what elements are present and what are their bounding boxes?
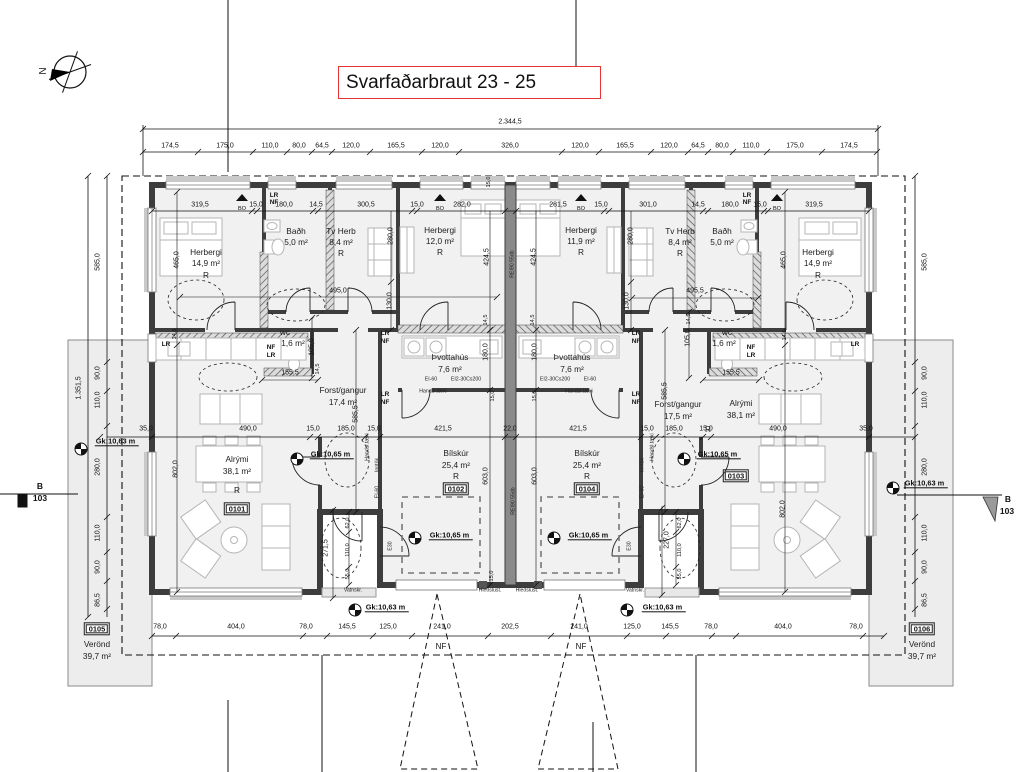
dimension-label: 22,0 bbox=[503, 426, 517, 433]
dimension-label: 585,0 bbox=[922, 253, 929, 271]
dimension-label: 175,0 bbox=[216, 143, 234, 150]
room-label: Verönd bbox=[909, 640, 935, 648]
dimension-label: 78,0 bbox=[704, 624, 718, 631]
dimension-label: 110,0 bbox=[743, 143, 760, 150]
dimension-label: 15,0 bbox=[594, 202, 608, 209]
dimension-label: 14,5 bbox=[173, 329, 179, 340]
dimension-label: 185,0 bbox=[337, 426, 355, 433]
dimension-label: 15,0 bbox=[367, 426, 381, 433]
north-label: N bbox=[39, 67, 49, 74]
dimension-label: 603,0 bbox=[483, 467, 490, 485]
window-tag: NF bbox=[632, 339, 641, 345]
dimension-label: 105,0 bbox=[309, 338, 316, 356]
room-label: 39,7 m² bbox=[908, 652, 936, 660]
driveway-marking bbox=[400, 594, 618, 769]
room-label: 25,4 m² bbox=[573, 461, 601, 469]
dimension-label: 80,0 bbox=[715, 143, 729, 150]
dimension-label: 280,0 bbox=[628, 227, 635, 245]
drawing-title: Svarfaðarbraut 23 - 25 bbox=[338, 66, 601, 99]
room-number-badge: 0102 bbox=[445, 484, 467, 493]
dimension-label: 495,5 bbox=[686, 288, 704, 295]
room-label: Herbergi bbox=[565, 226, 597, 234]
window-tag: NF bbox=[632, 400, 641, 406]
dimension-label: 110,0 bbox=[678, 543, 684, 557]
window-tag: NF bbox=[743, 200, 752, 206]
dimension-label: 15,0 bbox=[487, 177, 493, 188]
dimension-label: 421,5 bbox=[569, 426, 587, 433]
tech-label: Vatnskr. bbox=[344, 588, 362, 593]
dimension-label: 14,5 bbox=[783, 330, 789, 341]
room-label: 1,6 m² bbox=[712, 339, 736, 347]
dimension-label: 404,0 bbox=[227, 624, 245, 631]
dimension-label: 55,0 bbox=[346, 569, 352, 580]
level-label: Gk:10,63 m bbox=[365, 603, 409, 612]
room-label: Forst/gangur bbox=[654, 400, 701, 408]
dimension-label: 125,0 bbox=[379, 624, 397, 631]
level-label: Gk:10,65 m bbox=[697, 450, 741, 459]
room-label: Þvottahús bbox=[432, 353, 469, 361]
section-label: 103 bbox=[1000, 507, 1014, 516]
window-tag: LR bbox=[851, 342, 860, 348]
dimension-label: 404,0 bbox=[774, 624, 792, 631]
dimension-label: 15,0 bbox=[533, 391, 539, 402]
dimension-label: 145,5 bbox=[338, 624, 356, 631]
dimension-label: 64,5 bbox=[315, 143, 329, 150]
tech-label: REI90 55db bbox=[510, 250, 515, 277]
dimension-label: 15,0 bbox=[410, 202, 424, 209]
dimension-label: 465,0 bbox=[174, 251, 181, 269]
tech-label: Handsl.tæki bbox=[419, 389, 446, 394]
room-label: R bbox=[677, 249, 683, 257]
dimension-label: 15,0 bbox=[490, 571, 496, 582]
dimension-label: 465,0 bbox=[781, 251, 788, 269]
room-label: 7,6 m² bbox=[560, 365, 584, 373]
room-label: Alrými bbox=[225, 455, 248, 463]
dimension-label: 802,0 bbox=[173, 460, 180, 478]
tech-label: REI90 55db bbox=[511, 487, 516, 514]
dimension-label: 2.344,5 bbox=[498, 119, 521, 126]
dimension-label: 490,0 bbox=[239, 426, 257, 433]
room-label: 7,6 m² bbox=[438, 365, 462, 373]
dimension-label: 280,0 bbox=[95, 458, 102, 476]
dimension-label: 326,0 bbox=[501, 143, 519, 150]
window-tag: LR bbox=[632, 331, 641, 337]
dimension-label: 802,0 bbox=[780, 500, 787, 518]
section-label: 103 bbox=[33, 494, 47, 503]
room-label: R bbox=[234, 486, 240, 494]
dimension-label: 120,0 bbox=[431, 143, 449, 150]
dimension-label: 145,5 bbox=[661, 624, 679, 631]
north-arrow-icon bbox=[49, 51, 91, 92]
room-label: R bbox=[338, 249, 344, 257]
dimension-label: 603,0 bbox=[532, 467, 539, 485]
tech-label: EI2-30Cs200 bbox=[540, 377, 570, 382]
dimension-label: 15,0 bbox=[753, 202, 767, 209]
level-label: Gk:10,63 m bbox=[95, 437, 139, 446]
room-label: 11,9 m² bbox=[567, 237, 595, 245]
dimension-label: 585,0 bbox=[95, 253, 102, 271]
floor-plan-sheet: Svarfaðarbraut 23 - 25 2.344,5174,5175,0… bbox=[0, 0, 1025, 772]
tech-label: Handsl.tæki bbox=[565, 389, 592, 394]
window-tag: LR bbox=[381, 331, 390, 337]
dimension-label: 241,0 bbox=[570, 624, 588, 631]
dimension-label: 424,5 bbox=[484, 248, 491, 266]
dimension-label: 80,0 bbox=[292, 143, 306, 150]
dimension-label: 105,0 bbox=[685, 329, 692, 347]
dimension-label: 14,5 bbox=[316, 364, 322, 375]
window-tag: LR bbox=[162, 342, 171, 348]
dimension-label: 120,0 bbox=[342, 143, 360, 150]
room-label: R bbox=[453, 472, 459, 480]
room-label: 5,0 m² bbox=[284, 238, 308, 246]
window-tag: NF bbox=[381, 400, 390, 406]
tech-label: EI-60 bbox=[375, 486, 380, 498]
dimension-label: 282,0 bbox=[453, 202, 471, 209]
dimension-label: 15,0 bbox=[491, 391, 497, 402]
room-label: R bbox=[578, 248, 584, 256]
tech-label: Hleðslust. bbox=[516, 588, 539, 593]
dimension-label: 15,0 bbox=[640, 426, 654, 433]
dimension-label: 90,0 bbox=[922, 366, 929, 380]
nf-label: NF bbox=[576, 643, 587, 651]
window-tag: NF bbox=[747, 345, 756, 351]
dimension-label: 585,5 bbox=[353, 405, 360, 423]
dimension-label: 165,5 bbox=[616, 143, 634, 150]
room-label: R bbox=[584, 472, 590, 480]
dimension-label: 14,5 bbox=[687, 314, 693, 325]
room-label: wc bbox=[722, 328, 732, 336]
dimension-label: 155,5 bbox=[722, 370, 740, 377]
dimension-label: 90,0 bbox=[95, 366, 102, 380]
dimension-label: 35,0 bbox=[139, 426, 153, 433]
dimension-label: 280,0 bbox=[388, 227, 395, 245]
dimension-label: 495,0 bbox=[329, 288, 347, 295]
dimension-label: 110,0 bbox=[262, 143, 279, 150]
dimension-label: 62,0 bbox=[346, 518, 352, 529]
level-label: Gk:10,65 m bbox=[310, 450, 354, 459]
dimension-label: 110,0 bbox=[922, 392, 929, 409]
dimension-label: 78,0 bbox=[153, 624, 167, 631]
room-label: 1,6 m² bbox=[281, 339, 305, 347]
window-tag: LR bbox=[747, 353, 756, 359]
dimension-label: 15,0 bbox=[249, 202, 263, 209]
dimension-label: 86,5 bbox=[922, 593, 929, 607]
dimension-label: 174,5 bbox=[840, 143, 858, 150]
room-label: Herbergi bbox=[190, 248, 222, 256]
room-label: 38,1 m² bbox=[223, 467, 251, 475]
dimension-label: 15,0 bbox=[306, 426, 320, 433]
dimension-label: 185,0 bbox=[665, 426, 683, 433]
room-number-badge: 0105 bbox=[86, 624, 108, 633]
room-label: Bílskúr bbox=[574, 449, 599, 457]
dimension-label: 227,0 bbox=[664, 531, 671, 549]
room-number-badge: 0101 bbox=[226, 504, 248, 513]
room-number-badge: 0104 bbox=[576, 484, 598, 493]
room-label: Tv Herb bbox=[326, 227, 356, 235]
window-tag: NF bbox=[381, 339, 390, 345]
room-label: 5,0 m² bbox=[710, 238, 734, 246]
room-label: Baðh bbox=[712, 227, 731, 235]
tech-label: EI-60 bbox=[640, 486, 645, 498]
window-tag: LR bbox=[267, 353, 276, 359]
room-label: Baðh bbox=[286, 227, 305, 235]
dimension-label: 110,0 bbox=[95, 392, 102, 409]
dimension-label: 78,0 bbox=[849, 624, 863, 631]
dimension-label: 271,5 bbox=[323, 539, 330, 557]
dimension-label: 180,0 bbox=[721, 202, 739, 209]
dimension-label: 165,5 bbox=[387, 143, 405, 150]
window-tag: LR bbox=[381, 392, 390, 398]
dimension-label: BO bbox=[436, 207, 444, 213]
room-label: Forst/gangur bbox=[319, 386, 366, 394]
dimension-label: 120,0 bbox=[571, 143, 589, 150]
dimension-label: 78,0 bbox=[299, 624, 313, 631]
room-label: 17,5 m² bbox=[664, 412, 692, 420]
dimension-label: 14,5 bbox=[484, 315, 490, 326]
dimension-label: 241,0 bbox=[433, 624, 451, 631]
tech-label: EI-60 bbox=[425, 377, 437, 382]
dimension-label: 110,0 bbox=[346, 543, 352, 557]
dimension-label: 490,0 bbox=[769, 426, 787, 433]
room-label: 39,7 m² bbox=[83, 652, 111, 660]
dimension-label: 174,5 bbox=[161, 143, 179, 150]
terrace-right bbox=[869, 340, 953, 686]
tech-label: EI2-30Cs200 bbox=[451, 377, 481, 382]
level-label: Gk:10,63 m bbox=[642, 603, 686, 612]
room-label: 38,1 m² bbox=[727, 411, 755, 419]
room-label: 8,4 m² bbox=[668, 238, 692, 246]
room-label: Verönd bbox=[84, 640, 110, 648]
party-wall bbox=[505, 185, 516, 585]
tech-label: Hleðslust. bbox=[479, 588, 502, 593]
dimension-label: 421,5 bbox=[434, 426, 452, 433]
room-label: 14,9 m² bbox=[804, 259, 832, 267]
dimension-label: 110,0 bbox=[922, 525, 929, 542]
dimension-label: 35,0 bbox=[859, 426, 873, 433]
dimension-label: BO bbox=[577, 207, 585, 213]
dimension-label: 14,5 bbox=[691, 202, 705, 209]
room-label: R bbox=[815, 271, 821, 279]
section-marker-left bbox=[18, 494, 27, 507]
dimension-label: 585,5 bbox=[662, 382, 669, 400]
dimension-label: 175,0 bbox=[786, 143, 804, 150]
dimension-label: 180,0 bbox=[532, 343, 539, 361]
dimension-label: 319,5 bbox=[805, 202, 823, 209]
window-tag: NF bbox=[270, 200, 279, 206]
room-label: Herbergi bbox=[424, 226, 456, 234]
window-tag: NF bbox=[267, 345, 276, 351]
dimension-label: 62,0 bbox=[678, 518, 684, 529]
room-number-badge: 0106 bbox=[911, 624, 933, 633]
room-label: Þvottahús bbox=[554, 353, 591, 361]
dimension-label: 281,5 bbox=[549, 202, 567, 209]
room-number-badge: 0103 bbox=[725, 471, 747, 480]
dimension-label: 130,0 bbox=[387, 292, 394, 310]
room-label: Bílskúr bbox=[443, 449, 468, 457]
dimension-label: 280,0 bbox=[922, 458, 929, 476]
level-label: Gk:10,63 m bbox=[904, 479, 948, 488]
tech-label: Handsl.tæki bbox=[650, 433, 655, 460]
dimension-label: 300,5 bbox=[357, 202, 375, 209]
room-label: 14,9 m² bbox=[192, 259, 220, 267]
nf-label: NF bbox=[436, 643, 447, 651]
room-label: R bbox=[437, 248, 443, 256]
dimension-label: 110,0 bbox=[95, 525, 102, 542]
dimension-label: 55,0 bbox=[678, 569, 684, 580]
tech-label: Inntök bbox=[640, 458, 645, 472]
dimension-label: 202,5 bbox=[501, 624, 519, 631]
room-label: Alrými bbox=[729, 399, 752, 407]
dimension-label: BO bbox=[238, 207, 246, 213]
dimension-label: 319,5 bbox=[191, 202, 209, 209]
room-label: R bbox=[705, 425, 711, 433]
tech-label: EI-60 bbox=[584, 377, 596, 382]
room-label: 8,4 m² bbox=[329, 238, 353, 246]
dimension-label: 64,5 bbox=[691, 143, 705, 150]
room-label: 12,0 m² bbox=[426, 237, 454, 245]
dimension-label: 424,5 bbox=[531, 248, 538, 266]
dimension-label: 86,5 bbox=[95, 593, 102, 607]
dimension-label: 1.351,5 bbox=[76, 376, 83, 399]
dimension-label: 180,0 bbox=[483, 343, 490, 361]
dimension-label: 90,0 bbox=[95, 560, 102, 574]
dimension-label: 14,5 bbox=[531, 315, 537, 326]
dimension-label: 125,0 bbox=[623, 624, 641, 631]
level-label: Gk:10,65 m bbox=[429, 531, 473, 540]
room-label: 25,4 m² bbox=[442, 461, 470, 469]
tech-label: Inntök bbox=[375, 458, 380, 472]
room-label: 17,4 m² bbox=[329, 398, 357, 406]
dimension-label: BO bbox=[773, 207, 781, 213]
floor-plan-drawing bbox=[0, 0, 1025, 772]
room-label: Herbergi bbox=[802, 248, 834, 256]
level-label: Gk:10,65 m bbox=[568, 531, 612, 540]
tech-label: E30 bbox=[627, 541, 632, 550]
section-label: B bbox=[37, 482, 43, 491]
dimension-label: 301,0 bbox=[639, 202, 657, 209]
room-label: R bbox=[203, 271, 209, 279]
dimension-label: 14,5 bbox=[309, 202, 323, 209]
tech-label: Vatnskr. bbox=[626, 588, 644, 593]
dimension-label: 120,0 bbox=[660, 143, 678, 150]
dimension-label: 90,0 bbox=[922, 560, 929, 574]
dimension-label: 130,0 bbox=[624, 292, 631, 310]
room-label: wc bbox=[280, 328, 290, 336]
section-marker-right bbox=[983, 497, 998, 521]
room-label: Tv Herb bbox=[665, 227, 695, 235]
tech-label: Handsl.tæki bbox=[365, 433, 370, 460]
dimension-label: 155,5 bbox=[281, 370, 299, 377]
tech-label: E30 bbox=[388, 541, 393, 550]
window-tag: LR bbox=[632, 392, 641, 398]
section-label: B bbox=[1005, 495, 1011, 504]
